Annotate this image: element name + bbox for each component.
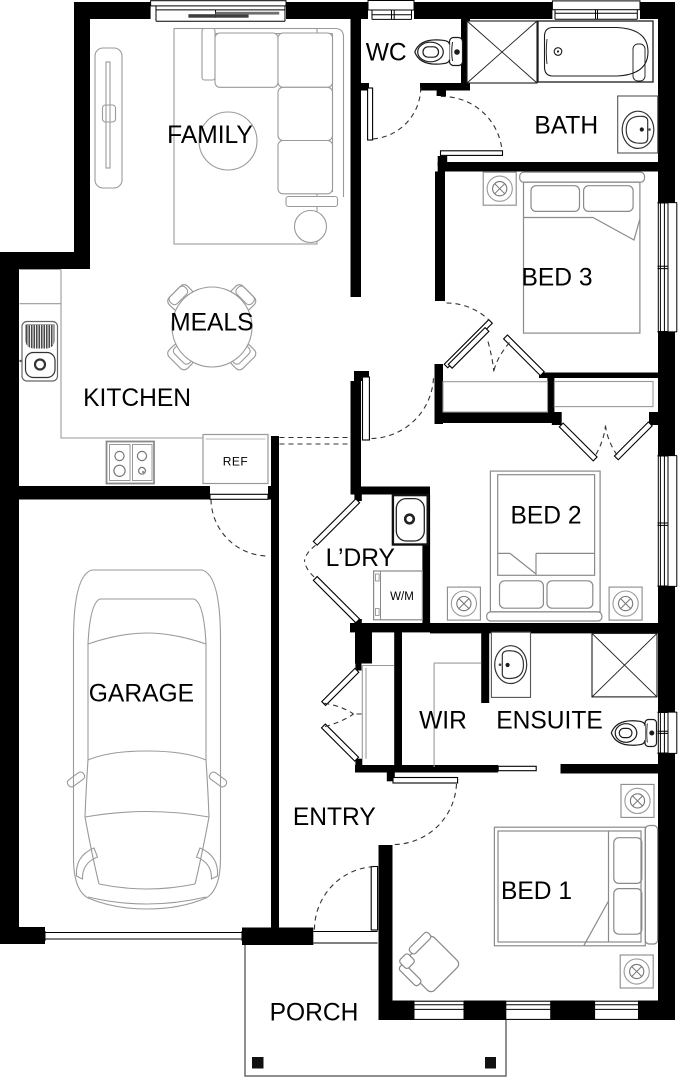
svg-text:ENTRY: ENTRY bbox=[293, 804, 376, 831]
svg-text:FAMILY: FAMILY bbox=[167, 122, 253, 149]
svg-text:WC: WC bbox=[366, 40, 407, 67]
svg-text:KITCHEN: KITCHEN bbox=[83, 385, 191, 412]
svg-text:ENSUITE: ENSUITE bbox=[496, 708, 603, 735]
svg-text:L’DRY: L’DRY bbox=[326, 545, 395, 572]
svg-text:W/M: W/M bbox=[390, 591, 414, 603]
svg-text:BED 2: BED 2 bbox=[510, 503, 581, 530]
svg-text:PORCH: PORCH bbox=[270, 1000, 359, 1027]
svg-text:BED 3: BED 3 bbox=[521, 265, 592, 292]
svg-text:GARAGE: GARAGE bbox=[89, 680, 194, 707]
svg-text:WIR: WIR bbox=[419, 708, 467, 735]
svg-text:MEALS: MEALS bbox=[170, 310, 253, 337]
svg-text:BATH: BATH bbox=[534, 113, 598, 140]
svg-text:REF: REF bbox=[223, 455, 249, 469]
svg-text:BED 1: BED 1 bbox=[501, 878, 572, 905]
